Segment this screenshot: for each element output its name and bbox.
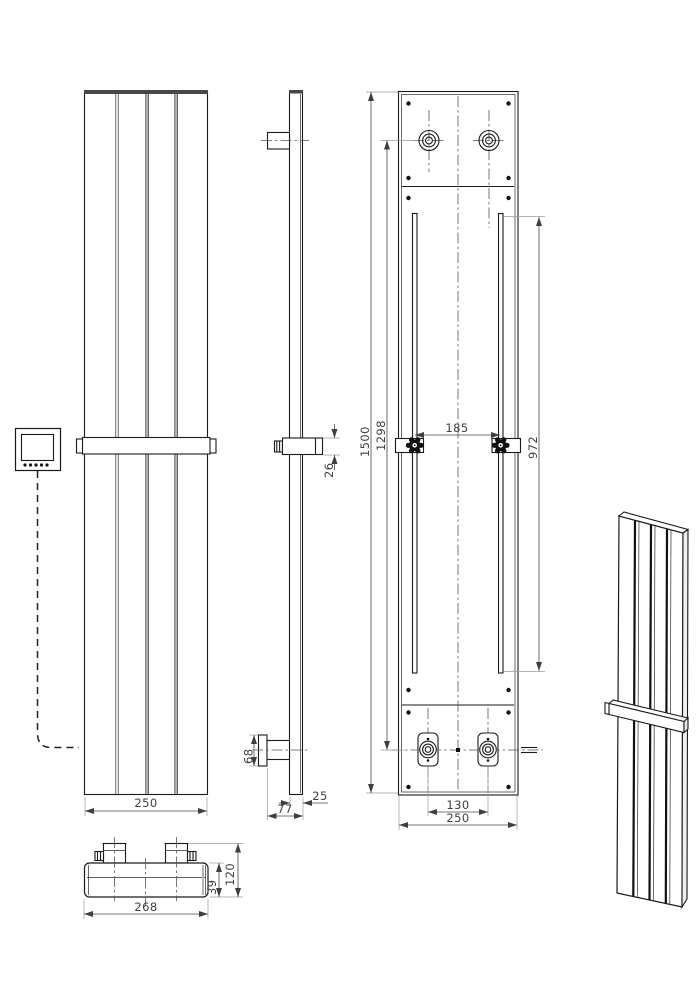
side-view: 26 68 25 77 [242,90,341,820]
side-top-cap [289,90,303,94]
dim-label-overall-height: 1500 [358,426,372,457]
dim-label-rail-length: 972 [526,436,540,459]
dim-label-bracket-spacing: 185 [445,421,468,435]
pipe-fitting-bottom-left [418,733,438,766]
dim-label-profile-depth: 25 [312,789,327,803]
dim-front-width: 250 [85,796,207,816]
thermostat-display [22,435,54,461]
radiator-body-plan [85,863,209,897]
thermostat-controller [16,429,80,748]
thermostat-cable [38,471,80,748]
radiator-technical-drawing: 250 [0,0,699,1000]
air-vent-left [95,852,104,861]
front-top-cap [84,90,208,94]
wall-bracket-left [396,437,424,453]
center-mark [456,748,460,752]
dim-label-total-depth: 77 [277,802,292,816]
front-view: 250 [77,90,217,816]
dim-label-rear-overall-width: 250 [446,811,469,825]
dim-label-pipe-centres-width: 130 [446,798,469,812]
wall-bracket-right [492,437,521,453]
dim-label-towel-bar-diameter: 26 [322,463,336,478]
towel-bar-side [275,438,323,455]
towel-bar-front [77,438,217,455]
dim-label-pipe-centres-height: 1298 [374,420,388,451]
dim-bottom-bracket-height: 68 [242,735,259,766]
technical-drawing-page: 250 [0,0,699,1000]
dim-label-bottom-bracket-height: 68 [242,749,256,764]
dim-label-bottom-overall-width: 268 [134,900,157,914]
dim-bottom-overall-width: 268 [84,899,208,919]
perspective-view [605,512,688,907]
rear-view: 185 1500 1298 972 130 [358,92,545,831]
dim-label-front-width: 250 [134,796,157,810]
dim-towel-bar-diameter: 26 [322,424,340,478]
air-vent-right [188,852,197,861]
bottom-view: 268 120 39 [84,837,243,919]
pipe-fitting-bottom-right [478,733,498,766]
dim-label-bottom-body-depth: 39 [205,880,219,895]
dim-label-bottom-overall-depth: 120 [223,863,237,886]
